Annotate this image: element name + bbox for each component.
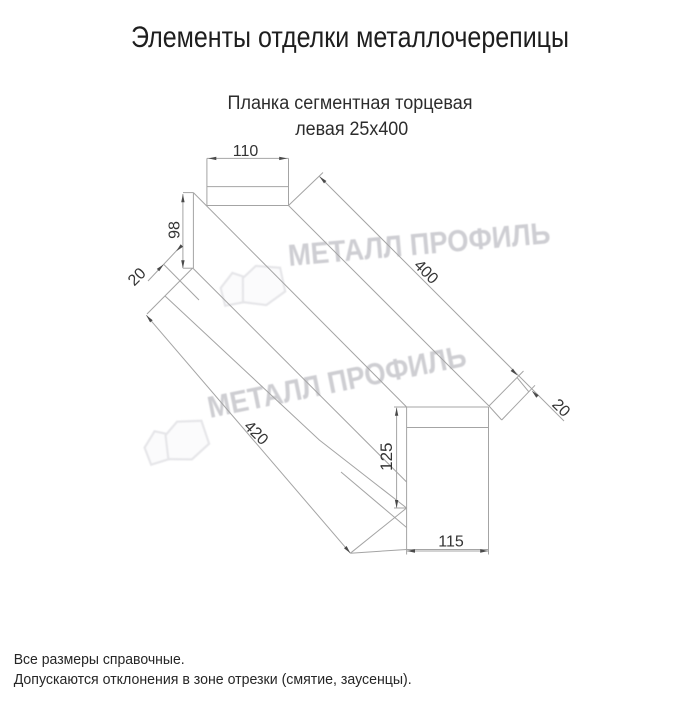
svg-text:98: 98 xyxy=(167,221,184,239)
svg-text:125: 125 xyxy=(377,443,396,471)
svg-text:Элементы отделки металлочерепи: Элементы отделки металлочерепицы xyxy=(131,21,569,54)
svg-text:115: 115 xyxy=(438,534,464,551)
svg-text:Допускаются отклонения в зоне: Допускаются отклонения в зоне отрезки (с… xyxy=(14,672,412,688)
svg-text:110: 110 xyxy=(233,143,259,160)
svg-text:Планка сегментная торцевая: Планка сегментная торцевая xyxy=(228,93,473,114)
svg-text:Все размеры справочные.: Все размеры справочные. xyxy=(14,652,185,668)
svg-text:левая 25х400: левая 25х400 xyxy=(295,119,408,140)
